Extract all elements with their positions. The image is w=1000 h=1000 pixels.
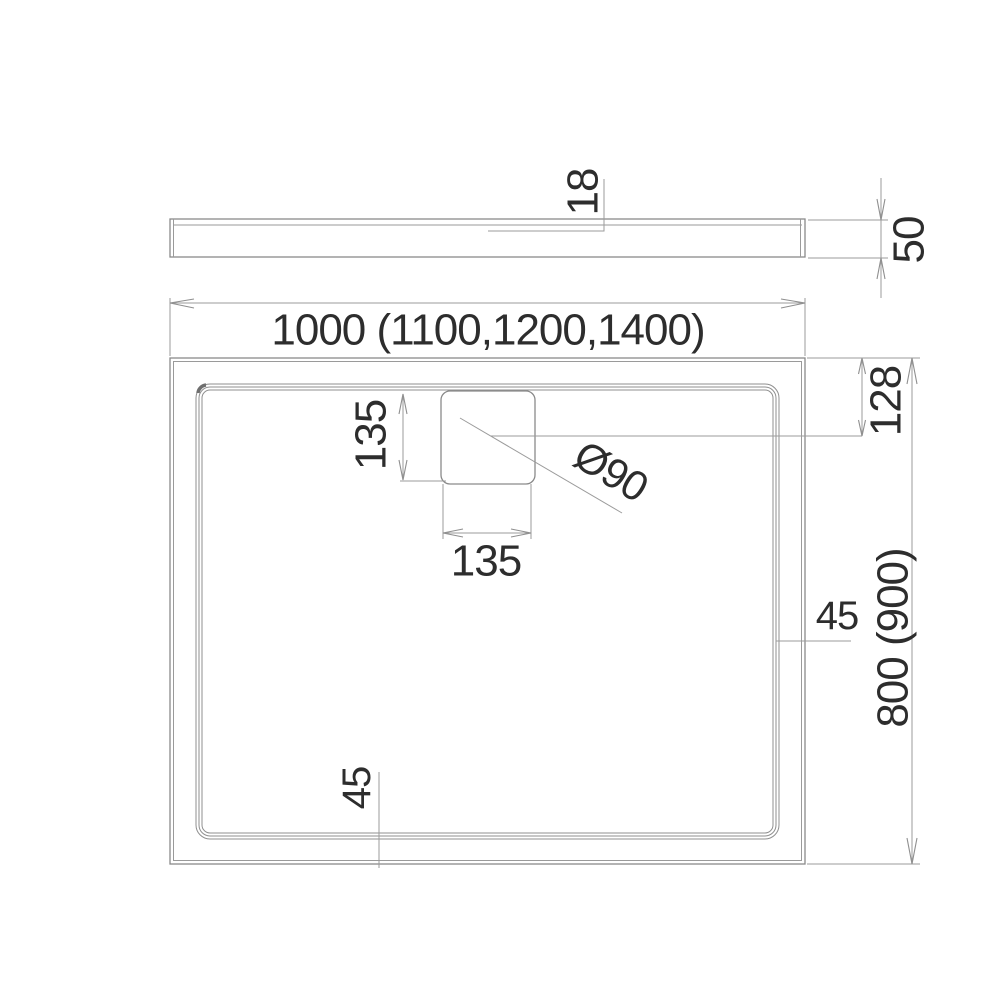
drain-length-dimension: 135 [347, 394, 447, 481]
depth-label: 800 (900) [869, 548, 918, 727]
drain-diameter-label: Ø90 [566, 431, 656, 511]
drain-offset-dimension: 128 [491, 358, 911, 436]
rim-width-bottom-label: 45 [335, 767, 379, 810]
thickness-dimension: 18 [488, 169, 608, 231]
drain-length-label: 135 [347, 400, 396, 470]
drain-width-label: 135 [451, 537, 521, 586]
height-label: 50 [885, 217, 934, 264]
height-dimension: 50 [808, 178, 934, 298]
drain-plate [441, 391, 535, 484]
drain-width-dimension: 135 [443, 484, 531, 586]
width-label: 1000 (1100,1200,1400) [271, 306, 704, 355]
rim-width-right-dimension: 45 [776, 594, 858, 641]
rim-width-bottom-dimension: 45 [335, 767, 379, 868]
drain-offset-label: 128 [862, 366, 911, 436]
width-dimension: 1000 (1100,1200,1400) [170, 298, 805, 356]
plan-view: 135 135 Ø90 128 [170, 358, 920, 868]
shower-tray-technical-drawing: 18 50 1000 (1100,1200,1400) [0, 0, 1000, 1000]
side-view-outline [170, 219, 805, 257]
basin-rim [196, 384, 779, 839]
side-view: 18 50 [170, 169, 934, 298]
rim-width-right-label: 45 [816, 594, 859, 638]
drain-diameter-callout: Ø90 [460, 418, 656, 513]
thickness-label: 18 [559, 169, 608, 216]
drawing-canvas: 18 50 1000 (1100,1200,1400) [0, 0, 1000, 1000]
